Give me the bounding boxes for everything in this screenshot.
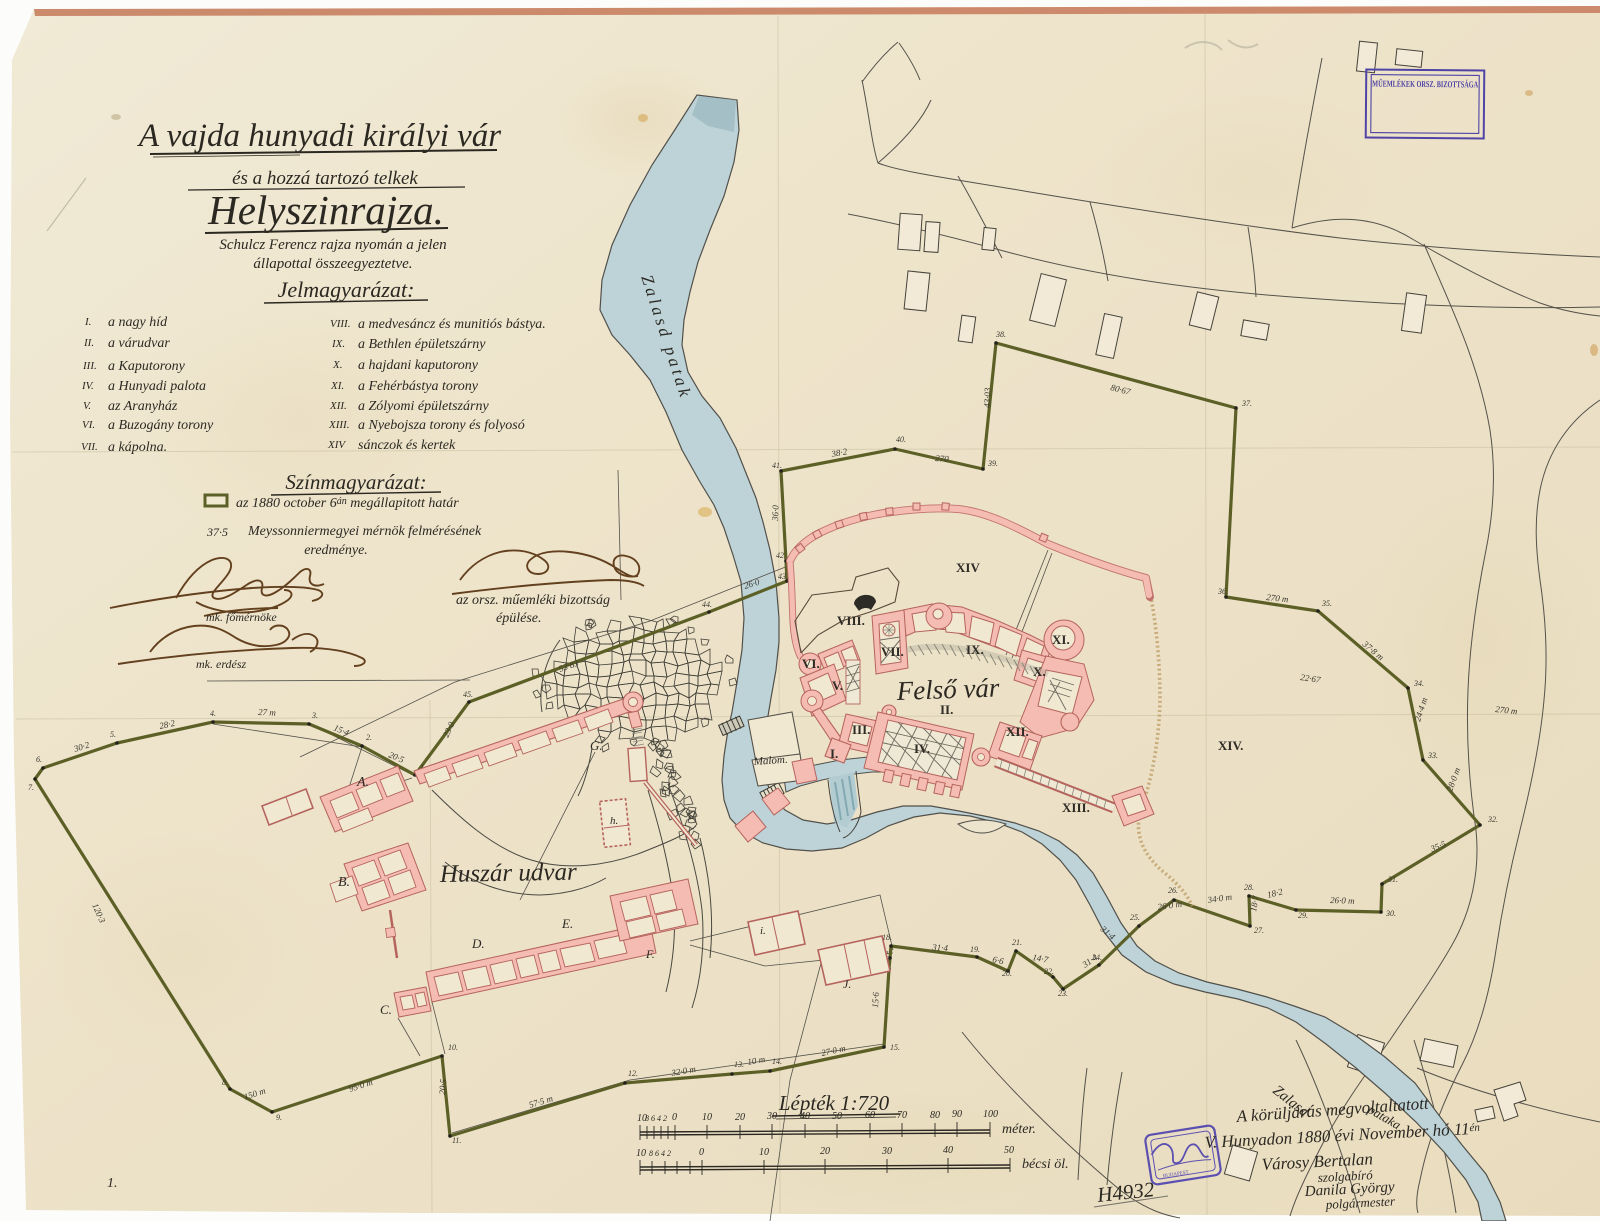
svg-text:37.: 37.: [1241, 399, 1252, 408]
svg-text:F.: F.: [645, 947, 655, 961]
svg-text:és a hozzá tartozó telkek: és a hozzá tartozó telkek: [232, 168, 418, 189]
svg-text:20: 20: [735, 1112, 745, 1123]
svg-text:39.: 39.: [987, 459, 998, 468]
svg-text:20·5: 20·5: [437, 1078, 448, 1095]
svg-text:II.: II.: [83, 337, 94, 349]
svg-text:20.: 20.: [1002, 969, 1012, 978]
svg-text:az 1880 october 6án megállapit: az 1880 october 6án megállapitott határ: [236, 496, 459, 511]
svg-text:XIII.: XIII.: [1062, 800, 1090, 815]
svg-text:I.: I.: [84, 316, 91, 328]
svg-text:a nagy híd: a nagy híd: [108, 315, 168, 330]
svg-text:A vajda hunyadi királyi vár: A vajda hunyadi királyi vár: [137, 118, 501, 154]
svg-text:36·0: 36·0: [770, 504, 781, 522]
svg-text:az Aranyház: az Aranyház: [108, 399, 178, 414]
svg-text:32.: 32.: [1487, 815, 1498, 824]
svg-text:XIV: XIV: [327, 439, 346, 451]
svg-text:V.: V.: [832, 678, 843, 693]
svg-text:40: 40: [943, 1145, 953, 1156]
svg-text:C.: C.: [380, 1002, 392, 1017]
svg-text:5.: 5.: [110, 730, 116, 739]
svg-text:V.: V.: [83, 400, 91, 412]
svg-text:26.: 26.: [1168, 886, 1178, 895]
svg-text:43.: 43.: [778, 572, 788, 581]
svg-text:34.: 34.: [1413, 679, 1424, 688]
svg-text:III.: III.: [82, 360, 97, 372]
svg-text:45.: 45.: [463, 690, 473, 699]
svg-text:D.: D.: [471, 936, 485, 951]
svg-text:22.: 22.: [1044, 967, 1054, 976]
svg-text:50: 50: [832, 1111, 842, 1122]
svg-text:VII.: VII.: [81, 441, 98, 453]
svg-text:41.: 41.: [772, 461, 782, 470]
svg-text:10: 10: [759, 1147, 769, 1158]
svg-text:a Zólyomi épületszárny: a Zólyomi épületszárny: [358, 399, 489, 414]
svg-text:29.: 29.: [1298, 911, 1308, 920]
svg-text:7.: 7.: [28, 783, 34, 792]
svg-text:43·03: 43·03: [982, 387, 993, 408]
svg-text:4.: 4.: [210, 709, 216, 718]
svg-text:36.: 36.: [1217, 587, 1228, 596]
svg-text:10.: 10.: [448, 1043, 458, 1052]
svg-text:E.: E.: [561, 916, 573, 931]
svg-text:100: 100: [983, 1109, 998, 1120]
svg-text:Huszár udvar: Huszár udvar: [439, 859, 578, 888]
svg-text:23.: 23.: [1058, 989, 1068, 998]
svg-text:0: 0: [699, 1147, 704, 1158]
svg-text:J.: J.: [843, 977, 851, 991]
svg-text:14.: 14.: [772, 1057, 782, 1066]
svg-text:19.: 19.: [970, 945, 980, 954]
svg-text:i.: i.: [760, 925, 766, 937]
svg-text:az orsz. műemléki bizottság: az orsz. műemléki bizottság: [456, 593, 610, 608]
svg-text:35.: 35.: [1321, 599, 1332, 608]
svg-text:Meyssonniermegyei mérnök felmé: Meyssonniermegyei mérnök felmérésének: [247, 524, 482, 539]
svg-text:VIII.: VIII.: [330, 318, 350, 330]
svg-text:2.: 2.: [366, 733, 372, 742]
svg-text:a kápolna.: a kápolna.: [108, 440, 167, 455]
svg-text:MŰEMLÉKEK ORSZ. BIZOTTSÁGA: MŰEMLÉKEK ORSZ. BIZOTTSÁGA: [1372, 79, 1478, 90]
svg-text:24.: 24.: [1092, 953, 1102, 962]
svg-text:IV.: IV.: [914, 741, 930, 756]
svg-text:9.: 9.: [276, 1113, 282, 1122]
svg-text:IX.: IX.: [966, 642, 984, 657]
svg-text:Schulcz Ferencz rajza nyomán a: Schulcz Ferencz rajza nyomán a jelen: [219, 237, 446, 253]
svg-text:50: 50: [1004, 1145, 1014, 1156]
svg-text:a Fehérbástya torony: a Fehérbástya torony: [358, 379, 479, 394]
svg-text:0: 0: [672, 1112, 677, 1123]
svg-text:XI.: XI.: [330, 380, 344, 392]
svg-text:13.: 13.: [734, 1060, 744, 1069]
svg-text:3.: 3.: [311, 711, 318, 720]
svg-text:38.: 38.: [995, 330, 1006, 339]
svg-text:6.: 6.: [36, 755, 42, 764]
svg-text:270: 270: [935, 453, 950, 464]
svg-text:a Bethlen épületszárny: a Bethlen épületszárny: [358, 337, 486, 352]
svg-text:állapottal összeegyeztetve.: állapottal összeegyeztetve.: [253, 256, 412, 272]
svg-text:11.: 11.: [452, 1136, 461, 1145]
svg-text:25.: 25.: [1130, 913, 1140, 922]
svg-text:sánczok és kertek: sánczok és kertek: [358, 438, 456, 453]
svg-text:27.: 27.: [1254, 926, 1264, 935]
svg-text:a Nyebojsza torony és folyosó: a Nyebojsza torony és folyosó: [358, 418, 525, 433]
svg-text:X.: X.: [1033, 664, 1046, 679]
svg-text:XIV: XIV: [956, 560, 980, 575]
svg-text:a hajdani kaputorony: a hajdani kaputorony: [358, 358, 479, 373]
svg-text:G.: G.: [590, 738, 603, 753]
svg-text:X.: X.: [332, 359, 342, 371]
svg-text:20: 20: [820, 1146, 830, 1157]
svg-text:III.: III.: [852, 722, 870, 737]
svg-text:mk. erdész: mk. erdész: [196, 657, 247, 671]
svg-text:XIII.: XIII.: [328, 419, 349, 431]
svg-text:a medvesáncz és munitiós básty: a medvesáncz és munitiós bástya.: [358, 317, 546, 332]
svg-text:IX.: IX.: [331, 338, 345, 350]
svg-text:33.: 33.: [1427, 751, 1438, 760]
svg-text:27 m: 27 m: [258, 707, 277, 718]
svg-text:70: 70: [897, 1110, 907, 1121]
svg-text:Színmagyarázat:: Színmagyarázat:: [285, 470, 426, 494]
svg-text:a Kaputorony: a Kaputorony: [108, 359, 186, 374]
svg-text:XII.: XII.: [329, 400, 347, 412]
svg-text:XIV.: XIV.: [1218, 738, 1243, 753]
svg-text:90: 90: [952, 1109, 962, 1120]
svg-text:8 6 4 2: 8 6 4 2: [645, 1114, 667, 1123]
svg-text:30: 30: [881, 1146, 892, 1157]
svg-text:VI.: VI.: [82, 419, 95, 431]
svg-text:40: 40: [800, 1111, 810, 1122]
svg-text:10: 10: [636, 1148, 646, 1159]
svg-text:Jelmagyarázat:: Jelmagyarázat:: [278, 277, 415, 302]
svg-text:21.: 21.: [1012, 938, 1022, 947]
svg-text:15·6: 15·6: [870, 991, 881, 1008]
svg-text:A.: A.: [356, 775, 369, 790]
svg-text:28.: 28.: [1244, 883, 1254, 892]
svg-text:40.: 40.: [896, 435, 906, 444]
svg-text:31·4: 31·4: [931, 942, 949, 953]
svg-text:42.: 42.: [776, 551, 786, 560]
svg-text:12.: 12.: [628, 1069, 638, 1078]
svg-text:31.: 31.: [1387, 875, 1398, 884]
svg-text:15.: 15.: [890, 1043, 900, 1052]
svg-text:VIII.: VIII.: [837, 613, 865, 628]
svg-text:Felső vár: Felső vár: [895, 672, 1000, 706]
svg-text:a várudvar: a várudvar: [108, 336, 170, 351]
svg-text:épülése.: épülése.: [496, 611, 541, 626]
svg-text:8.: 8.: [222, 1078, 228, 1087]
svg-text:mk. főmérnöke: mk. főmérnöke: [206, 610, 277, 624]
svg-text:IV.: IV.: [81, 380, 94, 392]
svg-text:26·0 m: 26·0 m: [1330, 895, 1355, 906]
svg-text:XI.: XI.: [1052, 632, 1070, 647]
svg-text:10: 10: [702, 1112, 712, 1123]
svg-text:eredménye.: eredménye.: [304, 543, 368, 558]
svg-text:a Hunyadi palota: a Hunyadi palota: [108, 379, 206, 394]
svg-text:30.: 30.: [1385, 909, 1396, 918]
svg-text:1.: 1.: [107, 1176, 118, 1191]
svg-text:VII.: VII.: [881, 644, 904, 659]
svg-text:bécsi öl.: bécsi öl.: [1022, 1157, 1069, 1172]
svg-text:60: 60: [865, 1110, 875, 1121]
svg-text:I.: I.: [830, 746, 838, 761]
svg-text:VI.: VI.: [802, 656, 820, 671]
svg-text:XII.: XII.: [1006, 724, 1029, 739]
svg-text:44.: 44.: [702, 600, 712, 609]
svg-text:Malom.: Malom.: [752, 754, 788, 768]
svg-text:8 6 4 2: 8 6 4 2: [649, 1149, 671, 1158]
svg-text:30: 30: [766, 1111, 777, 1122]
svg-text:h.: h.: [610, 815, 618, 827]
svg-text:a Buzogány torony: a Buzogány torony: [108, 418, 214, 433]
svg-text:80: 80: [930, 1110, 940, 1121]
svg-text:Helyszinrajza.: Helyszinrajza.: [207, 187, 444, 233]
svg-text:méter.: méter.: [1002, 1122, 1036, 1137]
svg-text:37·5: 37·5: [206, 525, 228, 539]
svg-text:B.: B.: [338, 875, 350, 890]
